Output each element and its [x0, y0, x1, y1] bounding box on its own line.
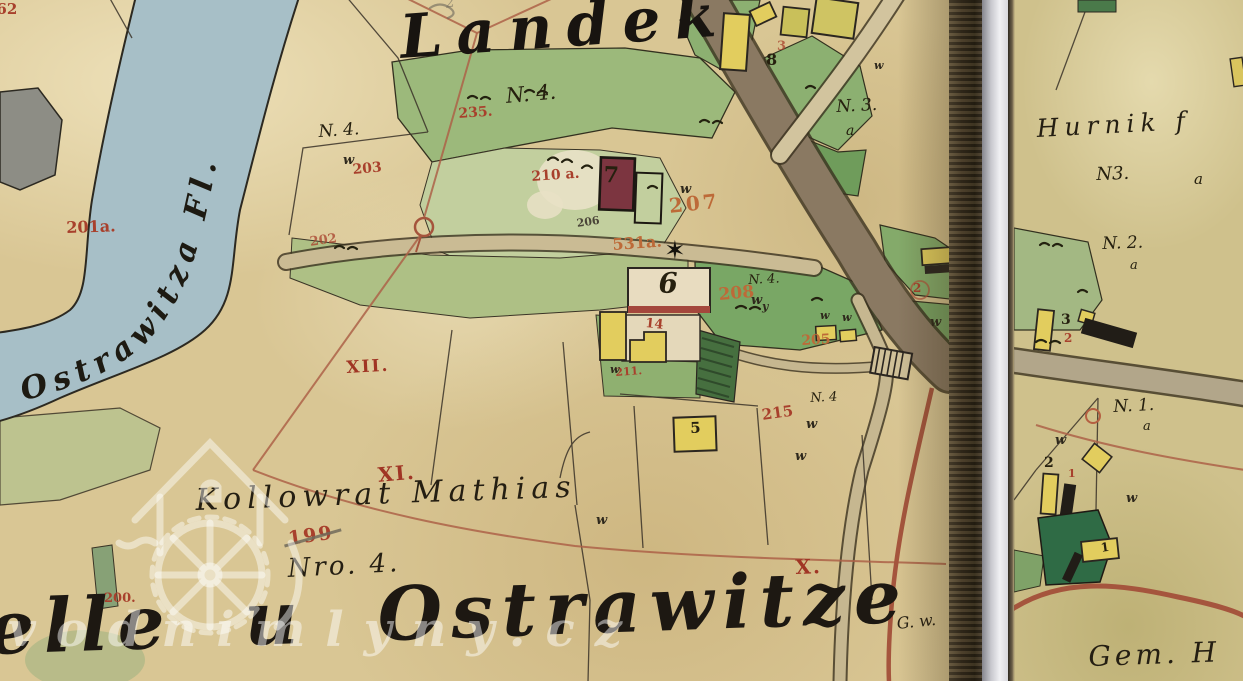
plot-label-n1-right: N. 1.: [1113, 397, 1155, 416]
house-number-3-right: 3: [1061, 313, 1071, 327]
sheet-gap: [982, 0, 1008, 681]
plot-label-n4-meadow: N. 4.: [505, 82, 557, 107]
meadow-mark: w: [795, 450, 806, 463]
meadow-mark: w: [751, 294, 762, 307]
parcel-number-210: 210 a.: [531, 167, 580, 184]
meadow-mark: w: [806, 418, 817, 431]
section-numeral-xii: XII.: [346, 358, 390, 377]
house-number-2-right: 2: [1044, 456, 1054, 470]
meadow-mark: w: [343, 154, 354, 167]
meadow-mark: w: [680, 183, 691, 196]
red-mark-2-right: 2: [1064, 332, 1072, 344]
meadow-mark: w: [874, 60, 883, 71]
house-number-7: 7: [603, 164, 619, 187]
parcel-number-201a: 201a.: [66, 218, 116, 236]
parcel-number-215: 215: [761, 404, 794, 423]
settlement-label-gem-h: Gem. H: [1088, 638, 1221, 671]
section-numeral-x: X.: [795, 556, 822, 577]
meadow-mark: w: [820, 310, 829, 321]
owner-name-hurnik: Hurnik f: [1036, 108, 1191, 141]
house-number-8: 8: [766, 52, 777, 68]
plot-letter-a-n1-right: a: [1143, 420, 1151, 433]
house-number-5: 5: [690, 421, 701, 436]
sheet-edge-cloth: [949, 0, 982, 681]
plot-letter-a-n3-right: a: [1194, 172, 1203, 187]
parcel-number-205: 205: [801, 332, 831, 348]
plot-label-n3-right: N3.: [1096, 165, 1130, 184]
meadow-mark: w: [610, 364, 619, 375]
plot-letter-a-n3: a: [846, 124, 854, 138]
plot-label-n2-right: N. 2.: [1102, 235, 1143, 253]
parcel-number-262: 262: [0, 2, 17, 17]
map-scan: Ostrawitza Fl. Landek elle u Ostrawitze …: [0, 0, 1243, 681]
plot-label-n4-field: N. 4.: [318, 121, 360, 141]
red-mark-3: 3: [777, 40, 786, 53]
plot-label-n4-208: N. 4.: [748, 272, 780, 287]
parcel-number-202: 202: [309, 232, 338, 249]
fold-shadow: [898, 0, 949, 681]
parcel-number-207: 207: [668, 191, 721, 216]
building-number-14: 14: [645, 317, 664, 332]
meadow-mark: w: [842, 312, 851, 323]
road-number-531a: 531a.: [612, 234, 662, 253]
meadow-mark: w: [596, 514, 607, 527]
right-sheet-edge: [1008, 0, 1015, 681]
section-numeral-xi: XI.: [377, 462, 416, 485]
plot-label-n3: N. 3.: [836, 97, 878, 116]
house-number-1-right: 1: [1100, 541, 1110, 554]
parcel-number-206: 206: [576, 215, 600, 229]
meadow-mark: w: [1126, 492, 1137, 505]
pencil-mark: 2: [444, 0, 456, 11]
plot-label-n4-215: N. 4: [810, 391, 838, 405]
plot-letter-a-n2-right: a: [1130, 259, 1138, 272]
meadow-mark: w: [1055, 434, 1066, 447]
parcel-number-235: 235.: [458, 105, 493, 121]
watermark-site-text: vodnimlyny.cz: [8, 606, 642, 654]
parcel-number-203: 203: [352, 160, 382, 176]
survey-star-icon: ✶: [664, 238, 686, 264]
house-number-6: 6: [658, 269, 678, 298]
red-mark-1-right: 1: [1068, 468, 1076, 479]
y-mark: y: [762, 301, 768, 312]
